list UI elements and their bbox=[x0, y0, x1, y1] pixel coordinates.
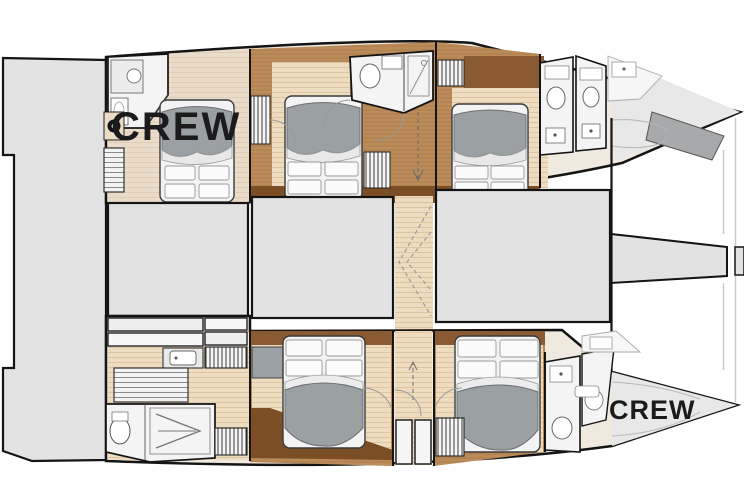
saloon-block-fore bbox=[436, 190, 610, 322]
crew-steps bbox=[104, 148, 124, 192]
saloon-block-mid bbox=[252, 197, 393, 318]
starboard-aft-bathroom bbox=[106, 404, 215, 462]
starboard-corridor bbox=[395, 331, 432, 465]
aft-deck bbox=[3, 58, 106, 461]
toilet-icon bbox=[552, 417, 572, 439]
wardrobe bbox=[215, 428, 247, 455]
toilet-icon bbox=[547, 87, 565, 109]
wardrobe bbox=[251, 96, 270, 144]
starboard-mid-cabin bbox=[250, 331, 393, 466]
crew-label-starboard: CREW bbox=[609, 397, 696, 424]
starboard-hull bbox=[106, 316, 737, 466]
starboard-mid-bed bbox=[283, 336, 365, 448]
galley-sink bbox=[163, 348, 203, 368]
galley-stairs bbox=[114, 368, 188, 402]
wardrobe bbox=[438, 60, 464, 86]
catamaran-floor-plan: CREW CREW bbox=[0, 0, 744, 496]
starboard-fore-cabin bbox=[434, 331, 545, 466]
center-corridor bbox=[395, 196, 433, 330]
toilet-icon bbox=[360, 64, 380, 88]
wardrobe bbox=[205, 347, 247, 368]
crew-label-port: CREW bbox=[111, 107, 241, 147]
nightstand bbox=[252, 347, 283, 378]
toilet-icon bbox=[583, 87, 599, 107]
nightstand bbox=[364, 152, 390, 188]
port-fore-bed bbox=[452, 104, 528, 200]
wardrobe bbox=[436, 418, 464, 456]
toilet-icon bbox=[110, 418, 130, 444]
port-bow bbox=[608, 56, 740, 162]
port-mid-bed bbox=[285, 96, 362, 200]
starboard-fore-bed bbox=[455, 336, 540, 452]
saloon-block-aft-left bbox=[108, 203, 248, 316]
port-fore-bathrooms bbox=[540, 56, 606, 155]
sink-icon bbox=[382, 56, 402, 69]
saloon-blocks bbox=[108, 190, 610, 330]
